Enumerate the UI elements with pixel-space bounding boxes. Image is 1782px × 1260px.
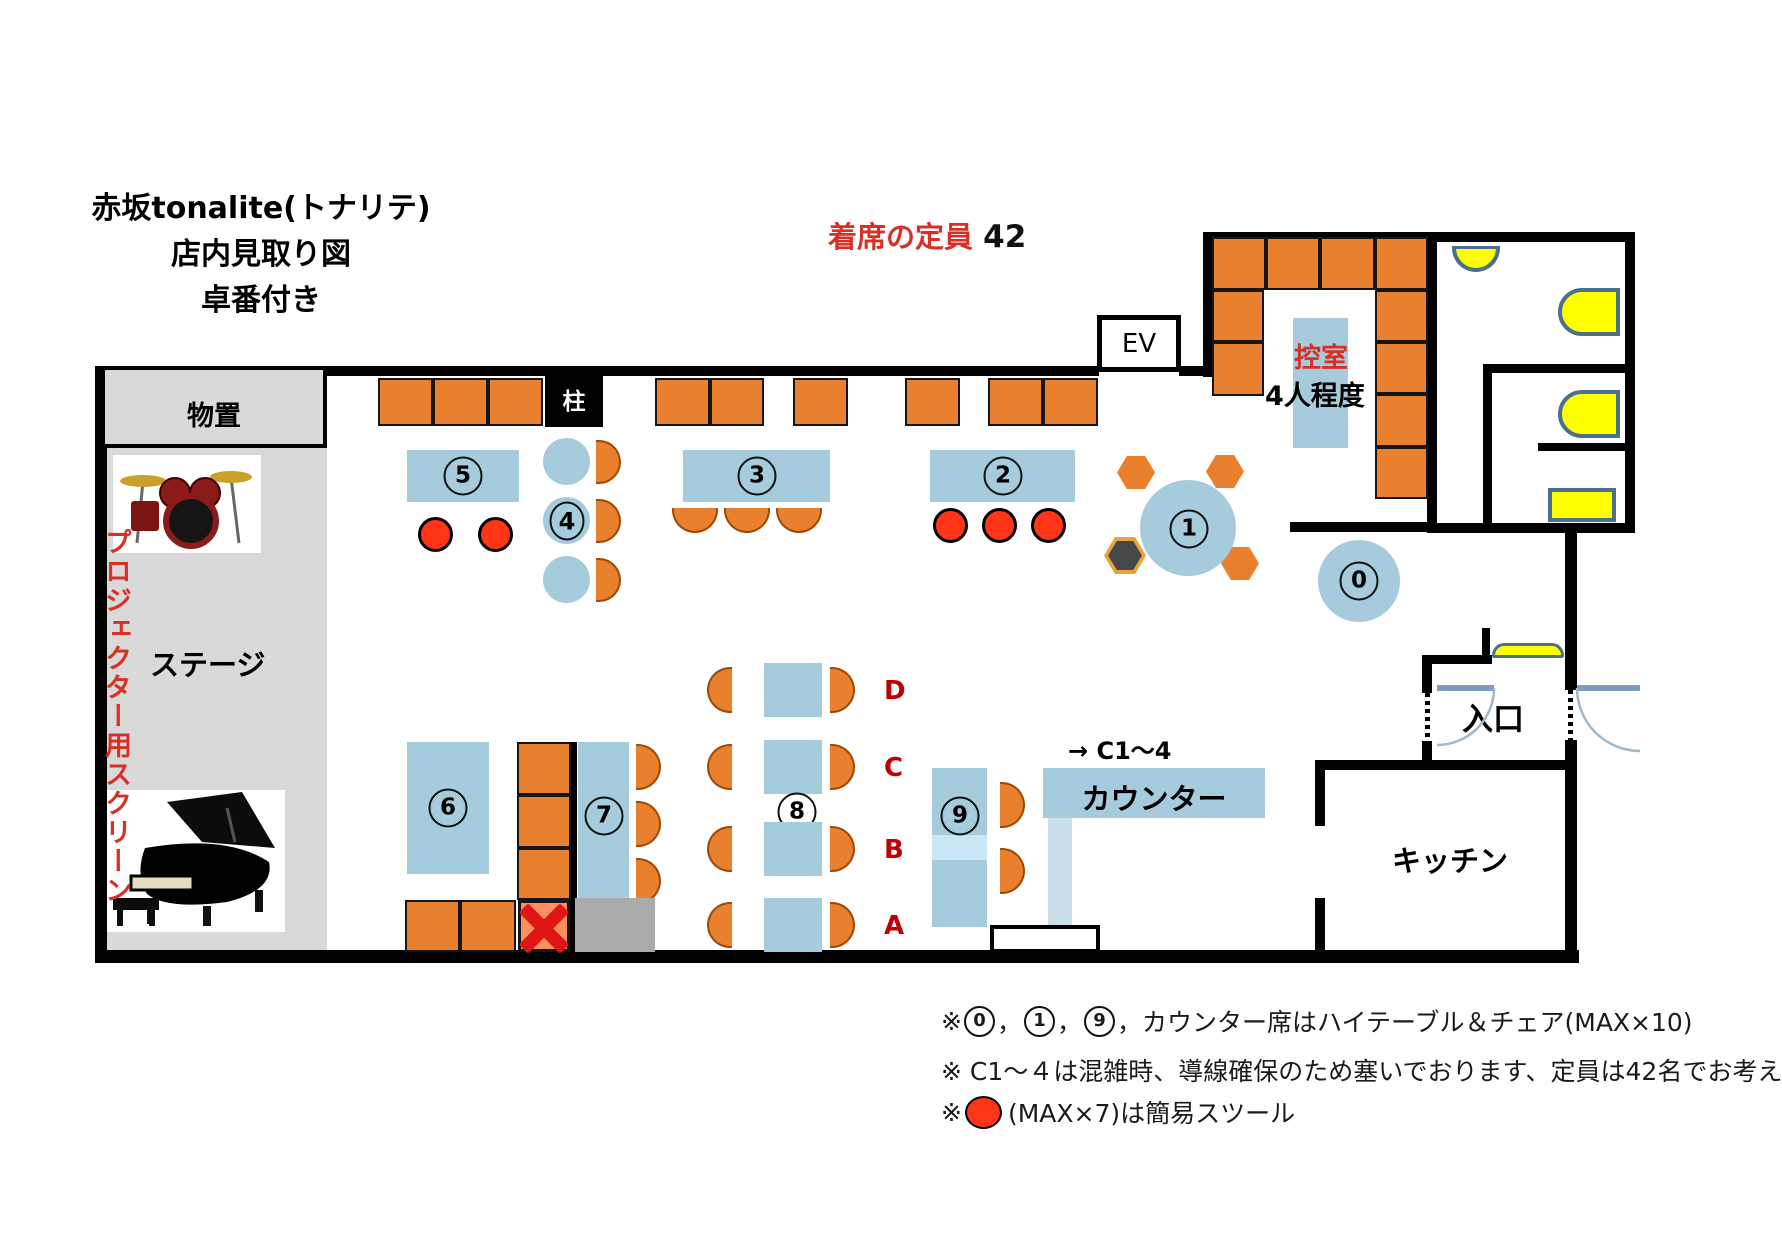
bench-seat (988, 378, 1043, 426)
chair-icon (596, 440, 621, 484)
toilet-icon (1558, 390, 1620, 438)
bench-seat (1212, 342, 1264, 396)
wall-bottom (95, 950, 1579, 963)
chair-icon (724, 508, 770, 533)
counter-step (990, 925, 1100, 953)
bench-seat (433, 378, 488, 426)
bench-seat (1375, 447, 1428, 499)
chair-icon (707, 744, 732, 790)
wall-waiting-room-bottom (1290, 522, 1437, 532)
note-1-text: カウンター席はハイテーブル＆チェア(MAX×10) (1142, 1003, 1693, 1039)
bench-seat (1375, 342, 1428, 394)
table-0-number: 0 (1340, 562, 1379, 601)
toilet-icon (1558, 288, 1620, 336)
counter-arrow-note: → C1～4 (1068, 731, 1171, 766)
counter-return (1048, 818, 1072, 928)
gray-block (575, 898, 655, 952)
bench-seat (405, 900, 460, 952)
hex-chair-dark-icon (1104, 537, 1146, 574)
pillar-label: 柱 (563, 382, 586, 416)
row-letter-a: A (884, 911, 904, 941)
bench-seat (905, 378, 960, 426)
kitchen-label: キッチン (1392, 838, 1508, 880)
table-9-highlight (932, 835, 987, 860)
wall-waiting-room-left (1203, 232, 1212, 377)
note-1-table1-icon: 1 (1024, 1006, 1055, 1037)
table-8-seat-a (764, 898, 822, 952)
note-2: ※ C1～４は混雑時、導線確保のため塞いでおります、定員は42名でお考え下さい。 (941, 1052, 1782, 1088)
wall-right-upper (1565, 528, 1577, 663)
wall-toilet-partition-v (1483, 364, 1492, 532)
chair-icon (830, 667, 855, 713)
wall-toilet-partition-h (1483, 364, 1625, 373)
bench-seat (793, 378, 848, 426)
table-1-number: 1 (1170, 510, 1209, 549)
wall-entrance-stub (1482, 628, 1490, 661)
elevator: EV (1097, 315, 1181, 372)
stool-icon (478, 517, 513, 552)
row-letter-b: B (884, 835, 904, 865)
wall-right-lower (1565, 740, 1577, 958)
chair-icon (830, 826, 855, 872)
table-8-seat-c (764, 740, 822, 794)
stool-icon (418, 517, 453, 552)
table-9-number: 9 (941, 797, 980, 836)
waiting-room-label: 控室 (1294, 336, 1348, 375)
door-swing-right-icon (1570, 680, 1652, 762)
row-letter-c: C (884, 753, 903, 783)
note-3: ※ (MAX×7)は簡易スツール (941, 1094, 1295, 1130)
bench-seat (1375, 290, 1428, 342)
hex-chair-icon (1206, 455, 1244, 488)
seated-capacity: 着席の定員 42 (828, 214, 1026, 256)
storage-room: 物置 (101, 366, 327, 448)
entrance-awning-icon (1492, 643, 1564, 658)
bench-seat (378, 378, 433, 426)
bench-seat (517, 742, 571, 795)
bench-seat (1212, 237, 1266, 290)
title-line3: 卓番付き (70, 278, 452, 324)
table-7-number: 7 (585, 797, 624, 836)
bench-seat (460, 900, 516, 952)
bench-seat (1375, 237, 1428, 290)
projector-screen-label: プロジェクター用スクリーン (96, 528, 135, 908)
drums-image (113, 455, 261, 553)
capacity-value: 42 (983, 219, 1026, 255)
table-4-bottom (543, 556, 590, 603)
washstand-icon (1548, 488, 1616, 522)
chair-icon (636, 801, 661, 847)
table-8-seat-d (764, 663, 822, 717)
bench-seat (1266, 237, 1320, 290)
note-1: ※ 0 ， 1 ， 9 ， カウンター席はハイテーブル＆チェア(MAX×10) (941, 1003, 1693, 1039)
table-2-number: 2 (984, 457, 1023, 496)
table-6-number: 6 (429, 789, 468, 828)
note-1-table0-icon: 0 (964, 1006, 995, 1037)
table-4-top (543, 438, 590, 485)
table-3-number: 3 (738, 457, 777, 496)
bench-seat (655, 378, 710, 426)
table-5-number: 5 (444, 457, 483, 496)
chair-icon (672, 508, 718, 533)
wall-kitchen-left-a (1315, 770, 1325, 826)
chair-icon (1000, 782, 1025, 828)
chair-icon (707, 826, 732, 872)
note-1-table9-icon: 9 (1084, 1006, 1115, 1037)
pillar: 柱 (545, 370, 603, 427)
counter: カウンター (1043, 768, 1265, 818)
table-8-seat-b (764, 822, 822, 876)
stool-icon (1031, 508, 1066, 543)
wall-waiting-toilet-divider (1427, 232, 1437, 533)
wall-kitchen-top (1315, 760, 1577, 770)
hex-chair-icon (1117, 456, 1155, 489)
elevator-label: EV (1122, 329, 1156, 359)
stool-icon (933, 508, 968, 543)
chair-icon (707, 902, 732, 948)
stool-legend-icon (965, 1096, 1002, 1129)
bench-seat (517, 795, 571, 848)
title-line1: 赤坂tonalite(トナリテ) (70, 186, 452, 232)
bench-seat (710, 378, 764, 426)
counter-label: カウンター (1043, 776, 1265, 818)
bench-seat (1375, 394, 1428, 447)
storage-label: 物置 (105, 394, 323, 433)
waiting-room-capacity: 4人程度 (1265, 374, 1365, 413)
title-line2: 店内見取り図 (70, 232, 452, 278)
row-letter-d: D (884, 676, 906, 706)
bench-seat (517, 848, 571, 900)
chair-icon (596, 499, 621, 543)
chair-icon (707, 667, 732, 713)
chair-icon (776, 508, 822, 533)
floor-plan: 赤坂tonalite(トナリテ) 店内見取り図 卓番付き 着席の定員 42 物置… (0, 0, 1782, 1260)
bench-seat (1320, 237, 1375, 290)
chair-icon (636, 744, 661, 790)
chair-icon (830, 902, 855, 948)
bench-seat (1043, 378, 1098, 426)
door-swing-left-icon (1430, 680, 1508, 758)
wall-toilet-partition-h2 (1538, 443, 1625, 451)
blocked-seat (518, 900, 570, 952)
chair-icon (830, 744, 855, 790)
chair-icon (596, 558, 621, 602)
chair-icon (1000, 848, 1025, 894)
sink-icon (1452, 246, 1500, 272)
bench-seat (488, 378, 543, 426)
page-title: 赤坂tonalite(トナリテ) 店内見取り図 卓番付き (70, 186, 452, 324)
wall-toilet-right (1625, 232, 1635, 533)
stage-label: ステージ (150, 642, 265, 684)
table-4-number: 4 (550, 504, 585, 539)
capacity-label: 着席の定員 (828, 220, 973, 254)
note-3-asterisk: ※ (941, 1098, 962, 1127)
bench-seat (1212, 290, 1264, 342)
note-1-asterisk: ※ (941, 1007, 962, 1036)
wall-kitchen-left-b (1315, 898, 1325, 958)
wall-toilet-bottom (1427, 523, 1635, 533)
note-3-text: (MAX×7)は簡易スツール (1008, 1094, 1295, 1130)
stool-icon (982, 508, 1017, 543)
